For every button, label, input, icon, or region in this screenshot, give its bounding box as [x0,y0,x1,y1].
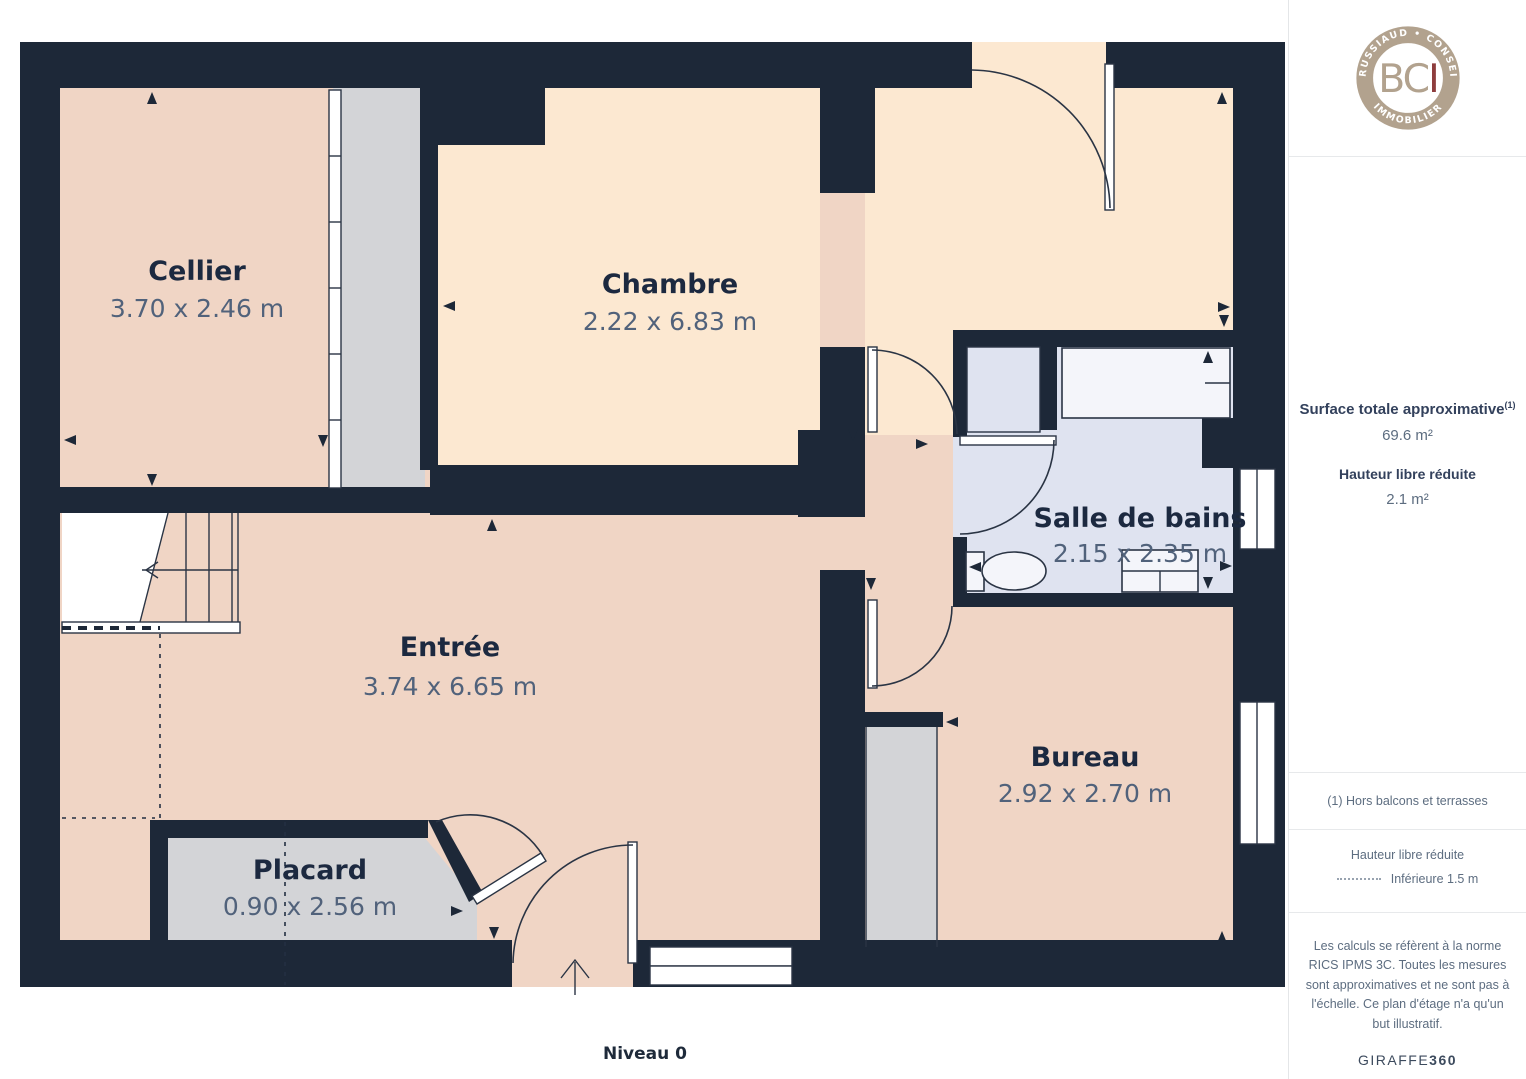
page: Cellier 3.70 x 2.46 m Chambre 2.22 x 6.8… [0,0,1526,1079]
giraffe360-brand: GIRAFFE360 [1289,1052,1526,1068]
room-label-entree: Entrée [400,632,501,663]
bci-logo-icon: BRUSSIAUD • CONSEIL IMMOBILIER BCI [1349,19,1467,137]
room-dim-cellier: 3.70 x 2.46 m [110,294,284,323]
agency-logo: BRUSSIAUD • CONSEIL IMMOBILIER BCI [1289,0,1526,157]
room-label-salle-de-bains: Salle de bains [1033,503,1246,534]
room-dim-entree: 3.74 x 6.65 m [363,672,537,701]
dotted-line-swatch [1337,878,1381,880]
room-dim-placard: 0.90 x 2.56 m [223,892,397,921]
reduced-height-value: 2.1 m² [1289,491,1526,508]
disclaimer-text: Les calculs se réfèrent à la norme RICS … [1306,937,1510,1034]
surface-total-value: 69.6 m² [1289,427,1526,444]
footnote-text: (1) Hors balcons et terrasses [1327,794,1487,808]
surface-total-label: Surface totale approximative(1) [1289,400,1526,418]
footnote-marker: (1) [1505,400,1516,410]
room-label-chambre: Chambre [602,269,738,300]
room-dim-bureau: 2.92 x 2.70 m [998,779,1172,808]
footnote-section: (1) Hors balcons et terrasses [1289,773,1526,830]
reduced-height-label: Hauteur libre réduite [1289,466,1526,482]
level-label: Niveau 0 [603,1044,687,1064]
room-dim-chambre: 2.22 x 6.83 m [583,307,757,336]
room-label-bureau: Bureau [1031,742,1140,773]
svg-text:BCI: BCI [1378,56,1437,102]
floor-plan: Cellier 3.70 x 2.46 m Chambre 2.22 x 6.8… [0,0,1288,1079]
legend-title: Hauteur libre réduite [1289,848,1526,862]
disclaimer-section: Les calculs se réfèrent à la norme RICS … [1289,913,1526,1078]
info-sidebar: BRUSSIAUD • CONSEIL IMMOBILIER BCI Surfa… [1288,0,1526,1079]
legend-section: Hauteur libre réduite Inférieure 1.5 m [1289,830,1526,913]
room-label-cellier: Cellier [148,256,246,287]
room-label-placard: Placard [253,855,367,886]
legend-value: Inférieure 1.5 m [1391,872,1479,886]
room-dim-salle-de-bains: 2.15 x 2.35 m [1053,539,1227,568]
surface-summary: Surface totale approximative(1) 69.6 m² … [1289,157,1526,773]
